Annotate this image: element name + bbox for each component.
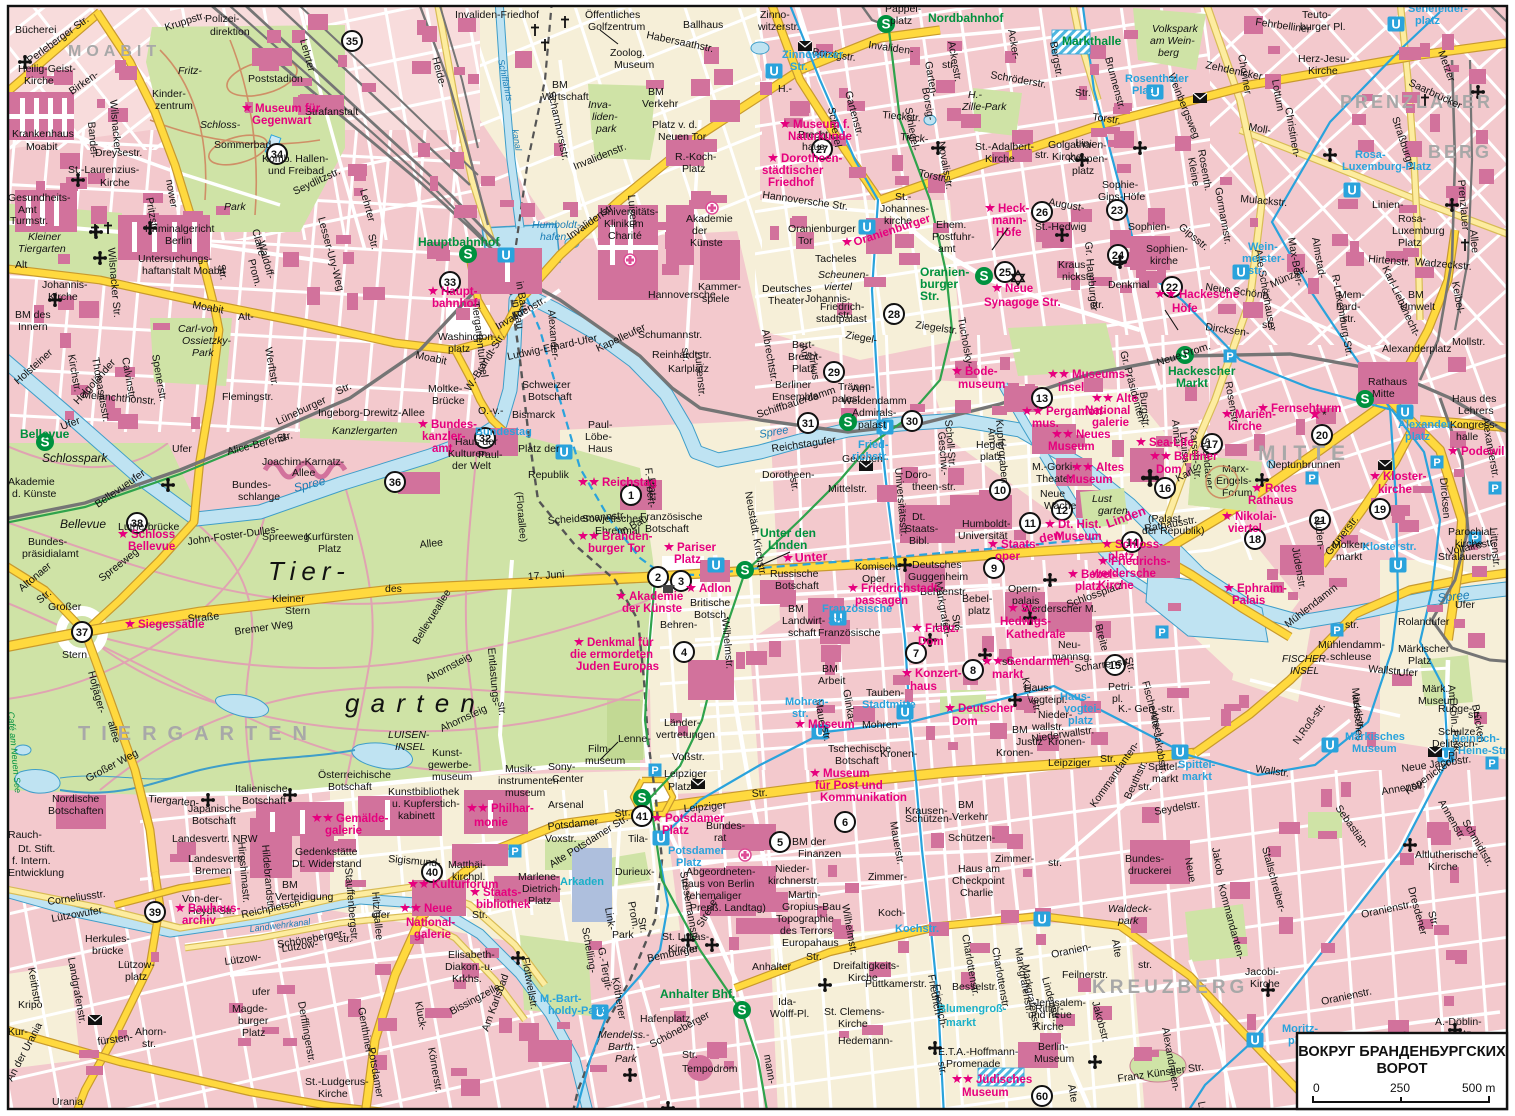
svg-text:Berlin: Berlin bbox=[165, 235, 192, 247]
svg-text:Gropius-Bau: Gropius-Bau bbox=[782, 901, 841, 913]
svg-text:Engels-: Engels- bbox=[1216, 475, 1252, 487]
svg-text:des: des bbox=[385, 583, 402, 595]
svg-text:LUISEN-: LUISEN- bbox=[388, 729, 430, 741]
svg-text:der Welt: der Welt bbox=[452, 460, 491, 472]
svg-text:Zinno-: Zinno- bbox=[760, 9, 790, 21]
svg-text:Kammer-: Kammer- bbox=[698, 281, 742, 293]
svg-text:Ahorn-: Ahorn- bbox=[135, 1026, 167, 1038]
svg-text:Kunst-: Kunst- bbox=[432, 747, 463, 759]
svg-text:Krkhs.: Krkhs. bbox=[452, 973, 482, 985]
svg-text:Paul-: Paul- bbox=[588, 419, 613, 431]
svg-text:Verkehr: Verkehr bbox=[952, 811, 989, 823]
svg-text:kirche: kirche bbox=[1378, 484, 1412, 496]
svg-text:der: der bbox=[692, 225, 708, 237]
svg-text:Platz: Platz bbox=[1408, 655, 1431, 667]
svg-text:S: S bbox=[637, 790, 646, 805]
svg-text:Kochstr.: Kochstr. bbox=[895, 923, 939, 935]
svg-text:Berliner: Berliner bbox=[775, 379, 812, 391]
svg-text:Europahaus: Europahaus bbox=[782, 937, 839, 949]
svg-text:Haus des: Haus des bbox=[1452, 393, 1496, 405]
svg-text:Alte: Alte bbox=[1116, 393, 1138, 405]
svg-text:Spittel-: Spittel- bbox=[1178, 759, 1216, 771]
svg-text:str.: str. bbox=[1345, 619, 1359, 631]
svg-text:P: P bbox=[1491, 483, 1498, 495]
svg-text:Löbe-: Löbe- bbox=[585, 431, 612, 443]
svg-text:Sophie-: Sophie- bbox=[1102, 179, 1139, 191]
svg-text:St.-Ludgerus-: St.-Ludgerus- bbox=[305, 1076, 369, 1088]
svg-text:4: 4 bbox=[681, 647, 688, 659]
svg-text:(Palast: (Palast bbox=[1148, 513, 1181, 525]
svg-text:Berliner: Berliner bbox=[1174, 451, 1218, 463]
svg-text:Ufer: Ufer bbox=[172, 443, 192, 455]
svg-text:Waldeck-: Waldeck- bbox=[1108, 903, 1152, 915]
svg-text:41: 41 bbox=[636, 811, 648, 823]
svg-text:Zimmer-: Zimmer- bbox=[995, 853, 1035, 865]
svg-text:Luxemburg: Luxemburg bbox=[1392, 225, 1445, 237]
svg-text:H.-: H.- bbox=[968, 89, 983, 101]
svg-text:Topographie: Topographie bbox=[776, 913, 834, 925]
svg-text:Fernsehturm: Fernsehturm bbox=[1271, 403, 1341, 415]
svg-text:Deutsches: Deutsches bbox=[912, 559, 962, 571]
svg-text:d. Künste: d. Künste bbox=[12, 488, 57, 500]
svg-text:markt: markt bbox=[946, 1017, 976, 1029]
svg-text:Behren-: Behren- bbox=[660, 619, 698, 631]
svg-text:Schloss-: Schloss- bbox=[1115, 539, 1163, 551]
svg-text:Nordbahnhof: Nordbahnhof bbox=[928, 11, 1004, 25]
svg-text:Feilnerstr.: Feilnerstr. bbox=[1062, 969, 1108, 981]
svg-text:amt: amt bbox=[938, 243, 956, 255]
svg-text:Museum: Museum bbox=[962, 1087, 1009, 1099]
svg-text:Promenade: Promenade bbox=[946, 1058, 1000, 1070]
svg-text:PRENZLAUER: PRENZLAUER bbox=[1340, 92, 1493, 112]
svg-text:National-: National- bbox=[406, 917, 455, 929]
svg-text:Marlene-: Marlene- bbox=[518, 871, 560, 883]
svg-text:str.: str. bbox=[1035, 149, 1049, 161]
svg-text:Berlin-: Berlin- bbox=[1038, 1041, 1069, 1053]
svg-text:Brücke: Brücke bbox=[432, 395, 465, 407]
svg-text:gewerbe-: gewerbe- bbox=[428, 759, 472, 771]
svg-text:platz: platz bbox=[1068, 715, 1094, 727]
svg-text:0: 0 bbox=[1313, 1081, 1320, 1095]
svg-text:Lenne-: Lenne- bbox=[618, 733, 651, 745]
svg-text:die ermordeten: die ermordeten bbox=[570, 649, 653, 661]
svg-text:Neues: Neues bbox=[1076, 429, 1111, 441]
svg-text:Zille-Park: Zille-Park bbox=[961, 101, 1007, 113]
svg-text:Bremen: Bremen bbox=[195, 865, 232, 877]
svg-text:BM der: BM der bbox=[792, 836, 826, 848]
svg-text:Bismarck: Bismarck bbox=[512, 409, 556, 421]
svg-text:BM: BM bbox=[1408, 289, 1424, 301]
svg-text:Ossietzky-: Ossietzky- bbox=[182, 335, 232, 347]
svg-text:Neue: Neue bbox=[1040, 488, 1065, 500]
svg-text:str.: str. bbox=[1262, 319, 1276, 331]
svg-text:Blumengroß-: Blumengroß- bbox=[938, 1003, 1007, 1015]
svg-text:str.: str. bbox=[935, 1060, 949, 1076]
svg-text:Rosenthaler: Rosenthaler bbox=[1125, 73, 1189, 85]
svg-text:Durieux-: Durieux- bbox=[615, 866, 655, 878]
svg-text:8: 8 bbox=[970, 665, 976, 677]
svg-text:Komische: Komische bbox=[855, 561, 901, 573]
svg-text:spiele: spiele bbox=[702, 293, 730, 305]
svg-text:Märkisches: Märkisches bbox=[1345, 731, 1405, 743]
svg-text:Nikolai-: Nikolai- bbox=[1235, 511, 1277, 523]
svg-text:Kirche: Kirche bbox=[48, 291, 78, 303]
svg-text:30: 30 bbox=[906, 416, 918, 428]
svg-text:P: P bbox=[1158, 627, 1165, 639]
svg-text:Ida-: Ida- bbox=[778, 996, 797, 1008]
svg-text:Platz: Platz bbox=[1398, 237, 1421, 249]
svg-text:Park: Park bbox=[612, 929, 634, 941]
svg-text:Str.: Str. bbox=[614, 806, 631, 820]
svg-text:nickstr.: nickstr. bbox=[1062, 271, 1095, 283]
svg-text:Anhalter Bhf.: Anhalter Bhf. bbox=[660, 987, 735, 1001]
svg-text:Humboldt-: Humboldt- bbox=[962, 518, 1011, 530]
svg-text:Diakon.-u.: Diakon.-u. bbox=[445, 961, 493, 973]
svg-text:P: P bbox=[651, 765, 658, 777]
svg-text:Tauben-: Tauben- bbox=[866, 687, 904, 699]
svg-text:ufer: ufer bbox=[252, 986, 271, 998]
svg-text:Mollstr.: Mollstr. bbox=[1452, 336, 1485, 348]
svg-text:Kunstbibliothek: Kunstbibliothek bbox=[388, 786, 460, 798]
svg-text:Republik: Republik bbox=[528, 469, 570, 481]
svg-text:Platz: Platz bbox=[242, 1027, 265, 1039]
svg-text:Carl-von: Carl-von bbox=[178, 323, 218, 335]
svg-text:Alt: Alt bbox=[15, 259, 27, 271]
svg-text:St.-Hedwig: St.-Hedwig bbox=[1035, 221, 1087, 233]
svg-text:5: 5 bbox=[777, 837, 783, 849]
svg-text:Museums-: Museums- bbox=[1072, 369, 1129, 381]
svg-text:Sophien-: Sophien- bbox=[1146, 243, 1189, 255]
svg-text:Turmstr.: Turmstr. bbox=[10, 215, 48, 227]
svg-text:Botschaft: Botschaft bbox=[775, 580, 819, 592]
svg-text:Tempodrom: Tempodrom bbox=[682, 1063, 738, 1075]
svg-text:Botsch.: Botsch. bbox=[694, 609, 729, 621]
svg-text:Botschaften: Botschaften bbox=[48, 805, 104, 817]
svg-text:Platz: Platz bbox=[792, 363, 815, 375]
svg-text:Tor: Tor bbox=[798, 235, 813, 247]
svg-text:P: P bbox=[1333, 625, 1340, 637]
svg-text:schleuse: schleuse bbox=[1330, 651, 1372, 663]
svg-text:liden-: liden- bbox=[592, 111, 618, 123]
svg-text:Dorotheen-: Dorotheen- bbox=[781, 153, 843, 165]
svg-text:Kleiner: Kleiner bbox=[272, 593, 305, 605]
svg-text:Zimmer-: Zimmer- bbox=[868, 871, 908, 883]
svg-text:Kathedrale: Kathedrale bbox=[1006, 629, 1065, 641]
svg-text:BM: BM bbox=[282, 879, 298, 891]
svg-text:Höfe: Höfe bbox=[1172, 303, 1198, 315]
svg-text:Film-: Film- bbox=[588, 743, 612, 755]
svg-text:brücke: brücke bbox=[92, 945, 124, 957]
svg-text:Kripo: Kripo bbox=[18, 999, 43, 1011]
svg-text:werdersche: werdersche bbox=[1091, 568, 1156, 580]
svg-text:Justiz: Justiz bbox=[1016, 736, 1043, 748]
svg-text:Platz: Platz bbox=[528, 895, 551, 907]
svg-text:platz: platz bbox=[448, 343, 470, 355]
svg-text:INSEL: INSEL bbox=[1290, 666, 1319, 677]
svg-text:Sea-Life: Sea-Life bbox=[1149, 437, 1194, 449]
svg-text:Naturkunde: Naturkunde bbox=[788, 131, 852, 143]
svg-text:S: S bbox=[740, 562, 749, 577]
svg-text:Opern-: Opern- bbox=[1008, 583, 1041, 595]
svg-text:Arsenal: Arsenal bbox=[548, 799, 584, 811]
svg-text:Allee: Allee bbox=[292, 467, 316, 479]
svg-text:10: 10 bbox=[994, 485, 1006, 497]
svg-text:str.: str. bbox=[1248, 265, 1265, 277]
svg-text:Pariser: Pariser bbox=[677, 542, 717, 554]
svg-text:Mem-: Mem- bbox=[1338, 289, 1365, 301]
svg-text:Verkehr: Verkehr bbox=[642, 98, 679, 110]
svg-text:Mohren-: Mohren- bbox=[862, 719, 902, 731]
svg-text:Fritz-: Fritz- bbox=[178, 65, 202, 77]
svg-text:Philhar-: Philhar- bbox=[491, 803, 534, 815]
svg-text:Kleiner: Kleiner bbox=[28, 231, 61, 243]
svg-text:Neptunbrunnen: Neptunbrunnen bbox=[1268, 459, 1341, 471]
svg-text:P: P bbox=[511, 846, 518, 858]
svg-text:holdy-Park: holdy-Park bbox=[548, 1005, 606, 1017]
svg-text:Bellevue: Bellevue bbox=[128, 541, 175, 553]
svg-text:Universitäts-: Universitäts- bbox=[600, 206, 659, 218]
svg-text:Schützen-: Schützen- bbox=[948, 832, 996, 844]
svg-text:20: 20 bbox=[1316, 430, 1328, 442]
svg-text:BERG: BERG bbox=[1428, 142, 1492, 162]
svg-text:Öffentliches: Öffentliches bbox=[585, 9, 640, 21]
svg-text:M.-Bart-: M.-Bart- bbox=[540, 993, 582, 1005]
svg-text:galerie: galerie bbox=[414, 929, 451, 941]
svg-text:museum: museum bbox=[585, 755, 626, 767]
svg-text:Haus: Haus bbox=[588, 443, 613, 455]
svg-text:U: U bbox=[1391, 17, 1400, 32]
svg-text:Museum: Museum bbox=[614, 59, 655, 71]
svg-text:Leipziger: Leipziger bbox=[1048, 757, 1091, 769]
svg-text:Podewil: Podewil bbox=[1461, 446, 1504, 458]
svg-text:galerie: galerie bbox=[325, 825, 362, 837]
svg-text:FISCHER-: FISCHER- bbox=[1282, 654, 1330, 665]
svg-text:Hedemann-: Hedemann- bbox=[838, 1035, 893, 1047]
svg-text:Gedenkstätte: Gedenkstätte bbox=[295, 846, 358, 858]
svg-text:Gegenwart: Gegenwart bbox=[252, 115, 312, 127]
svg-text:S: S bbox=[737, 1002, 746, 1017]
svg-text:str.: str. bbox=[787, 476, 801, 492]
svg-text:35: 35 bbox=[346, 36, 358, 48]
svg-text:druckerei: druckerei bbox=[1128, 865, 1171, 877]
svg-text:Sowjetisches: Sowjetisches bbox=[582, 513, 643, 525]
svg-text:zentrum: zentrum bbox=[155, 100, 193, 112]
svg-text:Friedhof: Friedhof bbox=[768, 177, 814, 189]
svg-text:Schumannstr.: Schumannstr. bbox=[638, 329, 702, 341]
svg-text:Teuto-: Teuto- bbox=[1302, 9, 1332, 21]
svg-text:Altes: Altes bbox=[1096, 462, 1124, 474]
svg-text:Fried-: Fried- bbox=[858, 439, 889, 451]
svg-text:Platz v. d.: Platz v. d. bbox=[652, 119, 697, 131]
svg-text:Heinrich-: Heinrich- bbox=[1452, 733, 1500, 745]
svg-text:schlange: schlange bbox=[238, 491, 280, 503]
svg-text:für Post und: für Post und bbox=[815, 780, 883, 792]
svg-text:archiv: archiv bbox=[182, 915, 216, 927]
svg-text:richstr.: richstr. bbox=[852, 451, 889, 463]
svg-text:U: U bbox=[559, 445, 568, 460]
svg-text:Denkmal: Denkmal bbox=[1108, 279, 1149, 291]
svg-text:Platz der: Platz der bbox=[518, 443, 560, 455]
svg-text:Ingeborg-Drewitz-Allee: Ingeborg-Drewitz-Allee bbox=[318, 407, 425, 419]
svg-text:Museum für: Museum für bbox=[255, 103, 321, 115]
svg-text:Staats-: Staats- bbox=[483, 887, 522, 899]
svg-text:viertel: viertel bbox=[824, 281, 853, 293]
svg-text:U: U bbox=[1236, 265, 1245, 280]
svg-text:Friedrich-: Friedrich- bbox=[820, 301, 865, 313]
svg-text:am Wein-: am Wein- bbox=[1150, 35, 1195, 47]
svg-text:mann-: mann- bbox=[992, 215, 1027, 227]
svg-text:burger Pl.: burger Pl. bbox=[1300, 21, 1346, 33]
svg-text:9: 9 bbox=[991, 563, 997, 575]
svg-text:kirche: kirche bbox=[1228, 421, 1262, 433]
svg-text:Alexanderplatz: Alexanderplatz bbox=[1382, 343, 1451, 355]
svg-text:Japanische: Japanische bbox=[188, 803, 241, 815]
svg-text:Adlon: Adlon bbox=[699, 583, 732, 595]
svg-text:Akademie: Akademie bbox=[8, 476, 55, 488]
svg-text:28: 28 bbox=[888, 309, 900, 321]
svg-text:palast: palast bbox=[832, 393, 860, 405]
svg-text:stadtpalast: stadtpalast bbox=[816, 313, 867, 325]
svg-text:250: 250 bbox=[1390, 1081, 1410, 1095]
svg-text:Museum: Museum bbox=[1048, 441, 1095, 453]
svg-text:str.: str. bbox=[942, 59, 956, 71]
svg-text:Akademie: Akademie bbox=[629, 591, 683, 603]
svg-text:Polizei-: Polizei- bbox=[205, 13, 240, 25]
svg-text:Kanzlergarten: Kanzlergarten bbox=[332, 425, 398, 437]
svg-text:Deutsches: Deutsches bbox=[762, 283, 812, 295]
svg-text:oper: oper bbox=[995, 551, 1020, 563]
svg-text:500 m: 500 m bbox=[1462, 1081, 1495, 1095]
svg-text:INSEL: INSEL bbox=[395, 741, 426, 753]
svg-text:insel: insel bbox=[1058, 382, 1084, 394]
svg-text:Haus am: Haus am bbox=[958, 863, 1000, 875]
svg-text:Platz: Platz bbox=[674, 554, 701, 566]
svg-text:Voßstr.: Voßstr. bbox=[672, 751, 705, 763]
svg-text:Dt.: Dt. bbox=[912, 511, 925, 523]
svg-text:Matthäi-: Matthäi- bbox=[448, 859, 486, 871]
svg-text:Anhalter: Anhalter bbox=[752, 961, 792, 973]
svg-text:Oranienburger: Oranienburger bbox=[788, 223, 856, 235]
svg-text:Märk.: Märk. bbox=[1422, 683, 1448, 695]
svg-text:Tila-: Tila- bbox=[628, 833, 649, 845]
svg-text:str.: str. bbox=[792, 708, 809, 720]
svg-text:Leipziger: Leipziger bbox=[664, 768, 707, 780]
svg-text:Johannes-: Johannes- bbox=[880, 203, 930, 215]
svg-text:Britische: Britische bbox=[690, 597, 730, 609]
svg-text:Sony-: Sony- bbox=[548, 761, 576, 773]
svg-text:ВОРОТ: ВОРОТ bbox=[1376, 1061, 1427, 1077]
svg-text:O.-v.-: O.-v.- bbox=[478, 405, 504, 417]
svg-text:markt: markt bbox=[1336, 551, 1362, 563]
svg-text:Barth.-: Barth.- bbox=[608, 1041, 640, 1053]
svg-text:direktion: direktion bbox=[210, 26, 250, 38]
svg-text:Hauptbahnhof: Hauptbahnhof bbox=[418, 235, 500, 249]
svg-text:Heilig-Geist-: Heilig-Geist- bbox=[18, 63, 76, 75]
svg-text:hard-: hard- bbox=[1336, 301, 1361, 313]
svg-text:Gips-Höfe: Gips-Höfe bbox=[1098, 191, 1145, 203]
svg-text:Charité: Charité bbox=[608, 230, 642, 242]
svg-text:Bellevue: Bellevue bbox=[60, 517, 106, 531]
svg-text:St. Lukas-: St. Lukas- bbox=[662, 931, 710, 943]
svg-text:Museum: Museum bbox=[823, 768, 870, 780]
svg-text:P: P bbox=[1308, 473, 1315, 485]
svg-text:Park: Park bbox=[192, 347, 214, 359]
svg-text:Palais: Palais bbox=[1232, 595, 1265, 607]
svg-text:Friedrichs-: Friedrichs- bbox=[1111, 556, 1171, 568]
svg-text:11: 11 bbox=[1024, 518, 1036, 530]
svg-text:Platz: Platz bbox=[668, 781, 691, 793]
svg-text:Klosterstr.: Klosterstr. bbox=[1362, 541, 1416, 553]
svg-text:Wolff-Pl.: Wolff-Pl. bbox=[770, 1008, 809, 1020]
svg-text:Platz: Platz bbox=[662, 825, 689, 837]
svg-text:Lützow-: Lützow- bbox=[118, 959, 155, 971]
svg-text:7: 7 bbox=[913, 648, 919, 660]
svg-text:Kirche: Kirche bbox=[1308, 65, 1338, 77]
svg-text:Marien-: Marien- bbox=[1235, 409, 1276, 421]
svg-text:Arbeit: Arbeit bbox=[818, 675, 846, 687]
svg-text:39: 39 bbox=[149, 907, 161, 919]
svg-text:Voxstr.: Voxstr. bbox=[545, 833, 577, 845]
svg-text:Märkischer: Märkischer bbox=[1398, 643, 1450, 655]
svg-text:Finanzen: Finanzen bbox=[798, 848, 841, 860]
svg-text:Str.: Str. bbox=[920, 289, 939, 303]
svg-text:Admirals-: Admirals- bbox=[852, 407, 897, 419]
svg-text:St.-: St.- bbox=[895, 191, 912, 203]
svg-text:BM: BM bbox=[648, 86, 664, 98]
svg-text:Höfe: Höfe bbox=[996, 227, 1022, 239]
svg-text:Kommunikation: Kommunikation bbox=[820, 792, 907, 804]
svg-text:Ballhaus: Ballhaus bbox=[683, 19, 723, 31]
svg-text:Franz.: Franz. bbox=[925, 623, 959, 635]
svg-text:23: 23 bbox=[1111, 205, 1123, 217]
svg-text:BM: BM bbox=[958, 799, 974, 811]
svg-text:Allee: Allee bbox=[419, 537, 444, 551]
svg-text:galerie: galerie bbox=[1092, 417, 1129, 429]
svg-text:Kirche: Kirche bbox=[24, 75, 54, 87]
svg-text:Str.: Str. bbox=[828, 615, 846, 627]
svg-text:Theater: Theater bbox=[768, 295, 805, 307]
svg-text:Bücherei: Bücherei bbox=[15, 24, 56, 36]
svg-text:haus von Berlin: haus von Berlin bbox=[682, 878, 755, 890]
svg-text:Museum: Museum bbox=[1034, 1053, 1075, 1065]
svg-text:Branden-: Branden- bbox=[602, 531, 653, 543]
svg-text:Synagoge Str.: Synagoge Str. bbox=[984, 297, 1061, 309]
svg-text:Dt. Hist.: Dt. Hist. bbox=[1058, 519, 1101, 531]
svg-text:Besselstr.: Besselstr. bbox=[952, 981, 998, 993]
svg-text:Kulturen: Kulturen bbox=[448, 448, 487, 460]
svg-text:Rathaus: Rathaus bbox=[1368, 376, 1407, 388]
svg-text:Str.: Str. bbox=[751, 787, 768, 800]
svg-text:Innern: Innern bbox=[18, 321, 48, 333]
svg-text:Scheunen-: Scheunen- bbox=[818, 269, 869, 281]
svg-text:P: P bbox=[1433, 457, 1440, 469]
svg-text:Kirche: Kirche bbox=[1428, 861, 1458, 873]
svg-text:Entwicklung: Entwicklung bbox=[8, 867, 64, 879]
svg-text:Rolandufer: Rolandufer bbox=[1398, 616, 1450, 628]
svg-text:Schloss-: Schloss- bbox=[200, 119, 241, 131]
svg-text:Brecht-: Brecht- bbox=[788, 351, 822, 363]
svg-text:Museum: Museum bbox=[1055, 531, 1102, 543]
svg-text:U: U bbox=[1037, 912, 1046, 927]
svg-text:Krankenhaus: Krankenhaus bbox=[12, 128, 74, 140]
svg-text:Elisabeth-: Elisabeth- bbox=[448, 949, 495, 961]
svg-text:3: 3 bbox=[678, 576, 684, 588]
svg-text:Botschaft: Botschaft bbox=[835, 755, 879, 767]
svg-text:str.: str. bbox=[1090, 299, 1104, 311]
svg-text:Bundes-: Bundes- bbox=[1125, 853, 1165, 865]
svg-text:U: U bbox=[1393, 558, 1402, 573]
svg-text:Schloss: Schloss bbox=[131, 529, 175, 541]
